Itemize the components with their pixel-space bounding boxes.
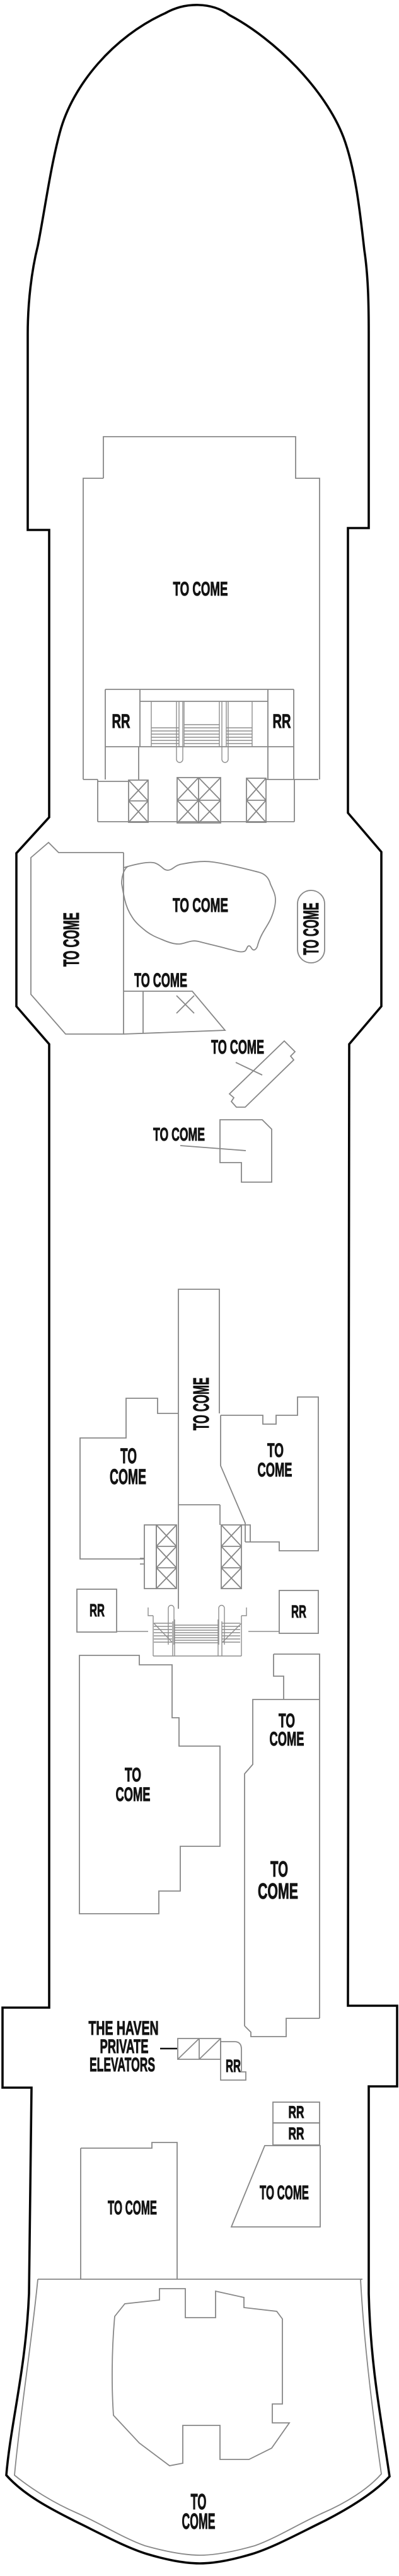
svg-text:TO COME: TO COME — [173, 894, 228, 916]
svg-text:TO COME: TO COME — [173, 578, 228, 600]
svg-text:COME: COME — [270, 1728, 304, 1750]
svg-text:COME: COME — [182, 2509, 216, 2534]
svg-text:RR: RR — [226, 2056, 241, 2076]
svg-text:RR: RR — [112, 710, 130, 732]
svg-text:TO COME: TO COME — [134, 969, 187, 991]
svg-text:TO COME: TO COME — [211, 1036, 264, 1058]
svg-text:TO COME: TO COME — [260, 2182, 309, 2204]
svg-text:COME: COME — [258, 1459, 292, 1481]
svg-text:TO COME: TO COME — [59, 912, 84, 967]
svg-text:ELEVATORS: ELEVATORS — [90, 2054, 155, 2076]
svg-text:TO COME: TO COME — [189, 1377, 214, 1430]
svg-text:TO COME: TO COME — [299, 903, 323, 955]
svg-text:RR: RR — [90, 1601, 105, 1620]
svg-text:RR: RR — [291, 1602, 306, 1621]
svg-text:TO COME: TO COME — [108, 2197, 157, 2219]
svg-text:RR: RR — [289, 2103, 304, 2122]
svg-text:TO: TO — [270, 1857, 288, 1882]
svg-text:RR: RR — [273, 710, 291, 732]
svg-text:RR: RR — [289, 2124, 304, 2143]
svg-text:TO: TO — [267, 1439, 284, 1461]
svg-text:COME: COME — [110, 1465, 146, 1489]
svg-text:TO COME: TO COME — [153, 1125, 205, 1145]
svg-text:COME: COME — [258, 1879, 298, 1904]
svg-text:TO: TO — [125, 1764, 141, 1786]
svg-text:COME: COME — [116, 1783, 151, 1805]
